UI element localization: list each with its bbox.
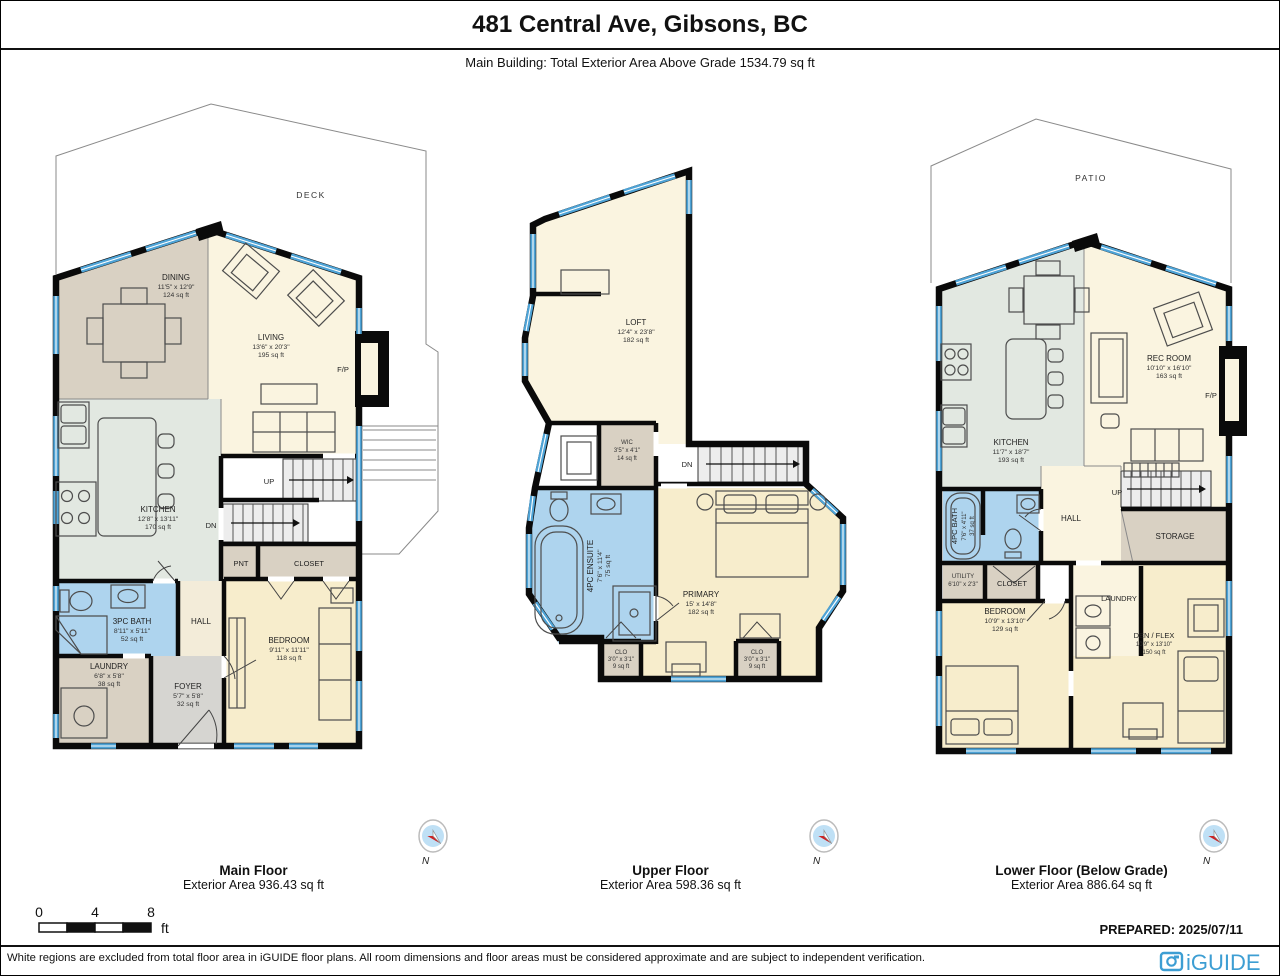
main-floor-plan: DECK bbox=[41, 96, 441, 756]
svg-text:CLOSET: CLOSET bbox=[997, 579, 1027, 588]
svg-text:8: 8 bbox=[147, 904, 155, 920]
svg-text:HALL: HALL bbox=[191, 617, 212, 626]
svg-text:32 sq ft: 32 sq ft bbox=[177, 701, 199, 708]
svg-text:LIVING: LIVING bbox=[258, 333, 284, 342]
svg-text:195 sq ft: 195 sq ft bbox=[258, 352, 284, 359]
page-title: 481 Central Ave, Gibsons, BC bbox=[1, 11, 1279, 39]
svg-text:37 sq ft: 37 sq ft bbox=[970, 516, 976, 536]
svg-text:5'7" x 5'8": 5'7" x 5'8" bbox=[173, 693, 203, 700]
svg-text:PRIMARY: PRIMARY bbox=[683, 590, 720, 599]
svg-text:118 sq ft: 118 sq ft bbox=[276, 655, 302, 662]
svg-text:STORAGE: STORAGE bbox=[1156, 532, 1195, 541]
svg-text:7'6" x 4'11": 7'6" x 4'11" bbox=[962, 511, 968, 540]
camera-icon bbox=[1161, 953, 1182, 970]
svg-text:124 sq ft: 124 sq ft bbox=[163, 292, 189, 299]
svg-text:UP: UP bbox=[1112, 488, 1122, 497]
room-living bbox=[208, 229, 359, 456]
lower-floor-label: Lower Floor (Below Grade) bbox=[969, 863, 1194, 878]
stairs-up bbox=[1121, 471, 1211, 507]
svg-text:N: N bbox=[422, 856, 430, 867]
room-loft bbox=[525, 171, 689, 444]
svg-text:52 sq ft: 52 sq ft bbox=[121, 636, 143, 643]
lower-floor-plan: PATIO bbox=[921, 111, 1251, 761]
svg-text:9'11" x 11'11": 9'11" x 11'11" bbox=[269, 647, 309, 654]
room-laundry bbox=[1071, 563, 1141, 656]
building-area-note: Main Building: Total Exterior Area Above… bbox=[1, 55, 1279, 70]
svg-text:FOYER: FOYER bbox=[174, 682, 202, 691]
deck-label: DECK bbox=[296, 190, 326, 200]
svg-text:DN: DN bbox=[206, 521, 217, 530]
svg-text:KITCHEN: KITCHEN bbox=[140, 505, 175, 514]
svg-text:9 sq ft: 9 sq ft bbox=[613, 664, 630, 670]
svg-text:3'0" x 3'1": 3'0" x 3'1" bbox=[744, 657, 770, 663]
svg-text:LAUNDRY: LAUNDRY bbox=[90, 662, 129, 671]
svg-text:DN: DN bbox=[682, 460, 693, 469]
main-floor-caption: Main Floor Exterior Area 936.43 sq ft bbox=[146, 863, 361, 892]
svg-text:ft: ft bbox=[161, 920, 169, 936]
stairs-down bbox=[698, 446, 806, 482]
room-bedroom bbox=[224, 579, 359, 746]
prepared-date: PREPARED: 2025/07/11 bbox=[1099, 922, 1243, 937]
svg-text:UP: UP bbox=[264, 477, 274, 486]
brand-name: iGUIDE bbox=[1186, 950, 1261, 975]
svg-text:9 sq ft: 9 sq ft bbox=[749, 664, 766, 670]
iguide-logo: iGUIDE bbox=[1159, 947, 1275, 975]
lower-floor-caption: Lower Floor (Below Grade) Exterior Area … bbox=[969, 863, 1194, 892]
svg-text:182 sq ft: 182 sq ft bbox=[623, 337, 649, 344]
svg-text:13'6" x 20'3": 13'6" x 20'3" bbox=[252, 344, 290, 351]
svg-text:DINING: DINING bbox=[162, 273, 190, 282]
compass-icon: N bbox=[1197, 819, 1231, 867]
floor-plan-page: 481 Central Ave, Gibsons, BC Main Buildi… bbox=[0, 0, 1280, 976]
svg-text:129 sq ft: 129 sq ft bbox=[992, 626, 1018, 633]
svg-text:BEDROOM: BEDROOM bbox=[984, 607, 1026, 616]
svg-text:170 sq ft: 170 sq ft bbox=[145, 524, 171, 531]
svg-text:6'8" x 5'8": 6'8" x 5'8" bbox=[94, 673, 124, 680]
upper-floor-label: Upper Floor bbox=[563, 863, 778, 878]
svg-text:DEN / FLEX: DEN / FLEX bbox=[1134, 631, 1175, 640]
lower-floor-area: Exterior Area 886.64 sq ft bbox=[969, 878, 1194, 892]
compass-icon: N bbox=[807, 819, 841, 867]
svg-text:CLO: CLO bbox=[751, 650, 764, 656]
footer-divider bbox=[1, 945, 1279, 947]
stairs-up bbox=[283, 459, 359, 501]
svg-text:8'11" x 5'11": 8'11" x 5'11" bbox=[114, 628, 151, 635]
upper-floor-plan: LOFT 12'4" x 23'8" 182 sq ft WIC 3'5" x … bbox=[521, 166, 861, 706]
svg-text:10'9" x 13'10": 10'9" x 13'10" bbox=[984, 618, 1026, 625]
svg-text:182 sq ft: 182 sq ft bbox=[688, 609, 714, 616]
stairs-down bbox=[223, 504, 308, 542]
svg-text:75 sq ft: 75 sq ft bbox=[605, 555, 612, 577]
svg-text:163 sq ft: 163 sq ft bbox=[1156, 373, 1182, 380]
svg-text:7'6" x 11'4": 7'6" x 11'4" bbox=[597, 549, 604, 583]
svg-text:12'4" x 23'8": 12'4" x 23'8" bbox=[617, 329, 655, 336]
svg-text:10'9" x 13'10": 10'9" x 13'10" bbox=[1136, 642, 1172, 648]
svg-text:150 sq ft: 150 sq ft bbox=[1142, 650, 1165, 656]
svg-text:12'8" x 13'11": 12'8" x 13'11" bbox=[138, 516, 179, 523]
svg-text:11'7" x 18'7": 11'7" x 18'7" bbox=[993, 449, 1030, 456]
header-divider bbox=[1, 48, 1279, 50]
svg-text:LAUNDRY: LAUNDRY bbox=[1101, 594, 1137, 603]
svg-text:10'10" x 16'10": 10'10" x 16'10" bbox=[1147, 365, 1192, 372]
svg-text:3'5" x 4'1": 3'5" x 4'1" bbox=[614, 448, 640, 454]
svg-text:LOFT: LOFT bbox=[626, 318, 647, 327]
svg-text:0: 0 bbox=[35, 904, 43, 920]
main-floor-area: Exterior Area 936.43 sq ft bbox=[146, 878, 361, 892]
fireplace bbox=[355, 331, 389, 407]
svg-text:3PC BATH: 3PC BATH bbox=[113, 617, 152, 626]
svg-text:3'0" x 3'1": 3'0" x 3'1" bbox=[608, 657, 634, 663]
svg-text:15' x 14'8": 15' x 14'8" bbox=[685, 601, 717, 608]
svg-text:11'5" x 12'9": 11'5" x 12'9" bbox=[158, 284, 195, 291]
svg-text:WIC: WIC bbox=[621, 440, 633, 446]
svg-text:KITCHEN: KITCHEN bbox=[993, 438, 1028, 447]
svg-text:14 sq ft: 14 sq ft bbox=[617, 456, 637, 462]
scale-bar: 0 4 8 ft bbox=[29, 904, 199, 942]
svg-text:38 sq ft: 38 sq ft bbox=[98, 681, 120, 688]
disclaimer-text: White regions are excluded from total fl… bbox=[7, 952, 1067, 964]
svg-text:4PC ENSUITE: 4PC ENSUITE bbox=[586, 540, 595, 592]
svg-text:N: N bbox=[813, 856, 821, 867]
svg-text:CLO: CLO bbox=[615, 650, 628, 656]
svg-text:PNT: PNT bbox=[234, 559, 249, 568]
svg-text:HALL: HALL bbox=[1061, 514, 1082, 523]
upper-floor-area: Exterior Area 598.36 sq ft bbox=[563, 878, 778, 892]
svg-text:UTILITY: UTILITY bbox=[952, 574, 974, 580]
upper-floor-caption: Upper Floor Exterior Area 598.36 sq ft bbox=[563, 863, 778, 892]
fireplace bbox=[1219, 346, 1247, 436]
svg-text:F/P: F/P bbox=[337, 365, 349, 374]
svg-text:BEDROOM: BEDROOM bbox=[268, 636, 310, 645]
svg-text:CLOSET: CLOSET bbox=[294, 559, 324, 568]
svg-text:6'10" x 2'3": 6'10" x 2'3" bbox=[948, 582, 978, 588]
compass-icon: N bbox=[416, 819, 450, 867]
patio-label: PATIO bbox=[1075, 173, 1107, 183]
svg-text:REC ROOM: REC ROOM bbox=[1147, 354, 1191, 363]
svg-text:F/P: F/P bbox=[1205, 391, 1217, 400]
main-floor-label: Main Floor bbox=[146, 863, 361, 878]
svg-text:N: N bbox=[1203, 856, 1211, 867]
svg-text:4PC BATH: 4PC BATH bbox=[950, 508, 959, 544]
svg-text:4: 4 bbox=[91, 904, 99, 920]
svg-text:193 sq ft: 193 sq ft bbox=[998, 457, 1024, 464]
